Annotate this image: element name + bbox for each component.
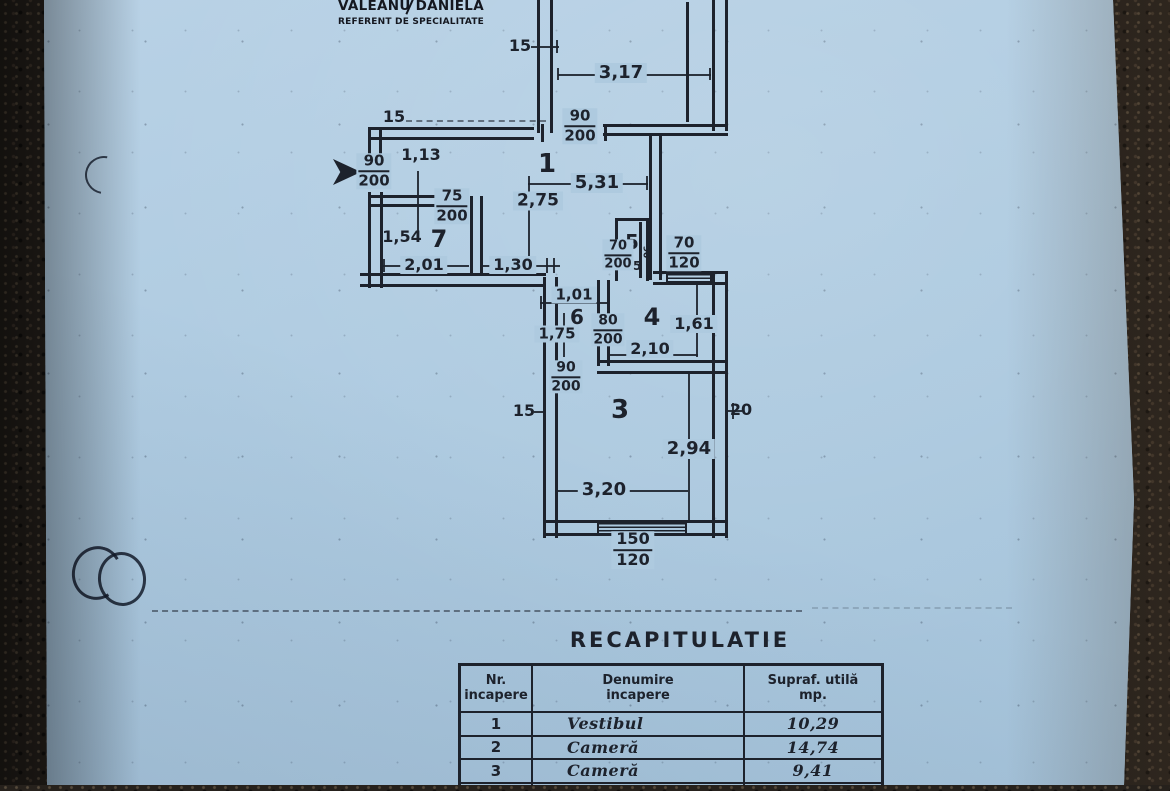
- dimension-label: 2,75: [513, 192, 563, 211]
- dim-tick: [709, 68, 711, 80]
- col-header-line: incapere: [464, 689, 528, 704]
- size-numerator: 75: [436, 188, 467, 207]
- dim-tick: [540, 296, 542, 309]
- size-denominator: 120: [668, 254, 699, 271]
- wall-segment: [537, 0, 553, 133]
- size-denominator: 200: [358, 172, 389, 189]
- table-row: 2Cameră14,74: [461, 735, 881, 759]
- door-jamb: [604, 124, 607, 141]
- col-header-line: incapere: [606, 689, 670, 704]
- wall-segment: [470, 196, 483, 274]
- row-name: Vestibul: [533, 713, 745, 735]
- fold-line: [812, 607, 1012, 609]
- dimension-label: 1,75: [534, 326, 579, 343]
- dimension-label: 5,31: [571, 173, 623, 193]
- size-denominator: 120: [613, 551, 652, 569]
- size-numerator: 70: [668, 235, 699, 254]
- size-numerator: 90: [358, 153, 389, 172]
- dimension-label: 3,17: [595, 63, 647, 83]
- room-number-3: 3: [611, 397, 629, 423]
- row-name: Cameră: [533, 760, 745, 782]
- wall-segment: [368, 127, 534, 140]
- door-75-200-room7: 75200: [434, 188, 469, 224]
- door-90-200-entrance: 90200: [356, 153, 391, 189]
- wall-partition: [686, 2, 689, 122]
- size-numerator: 90: [564, 108, 595, 127]
- size-denominator: 200: [604, 256, 631, 271]
- dim-tick: [553, 258, 555, 273]
- window-symbol: [666, 272, 712, 285]
- recap-rows: 1Vestibul10,292Cameră14,743Cameră9,41: [461, 711, 881, 782]
- recap-table: Nr. incapere Denumire incapere Supraf. u…: [458, 663, 884, 791]
- size-numerator: 90: [551, 360, 580, 378]
- dimension-label: 90: [641, 246, 650, 259]
- recap-title: RECAPITULATIE: [560, 628, 800, 652]
- col-header-line: mp.: [799, 689, 827, 704]
- dimension-label: 2,10: [626, 340, 673, 358]
- door-jamb: [541, 124, 544, 142]
- dimension-label: 1,61: [670, 315, 717, 333]
- wall-segment: [597, 360, 728, 374]
- wall-segment: [603, 124, 728, 136]
- room-number-7: 7: [431, 227, 448, 251]
- dimension-label: 3,20: [578, 480, 630, 500]
- dim-tick: [534, 411, 544, 413]
- dimension-label: 2,94: [663, 439, 715, 459]
- size-denominator: 200: [551, 378, 580, 394]
- dim-line: [417, 171, 419, 231]
- size-numerator: 150: [613, 531, 652, 551]
- row-nr: 3: [461, 760, 533, 782]
- row-area: 10,29: [745, 713, 881, 735]
- size-numerator: 80: [593, 313, 622, 331]
- dim-ext-line: [406, 120, 546, 122]
- wall-segment: [368, 195, 441, 207]
- fold-line: [152, 610, 802, 612]
- recap-table-header: Nr. incapere Denumire incapere Supraf. u…: [461, 666, 881, 711]
- col-header-nr: Nr. incapere: [461, 666, 533, 711]
- row-area: 14,74: [745, 737, 881, 759]
- wall-segment: [712, 0, 728, 131]
- col-header-line: Denumire: [602, 674, 673, 689]
- wall-segment: [543, 277, 558, 538]
- dimension-label: 1,54: [382, 229, 421, 245]
- col-header-suprafata: Supraf. utilă mp.: [745, 666, 881, 711]
- wall-segment: [360, 273, 546, 287]
- dim-tick: [546, 258, 548, 273]
- table-row: 3Cameră9,41: [461, 758, 881, 782]
- room-number-1: 1: [538, 151, 556, 177]
- row-area: 9,41: [745, 760, 881, 782]
- dimension-label: 20: [730, 402, 752, 418]
- dim-tick: [557, 68, 559, 80]
- wall-segment: [712, 271, 728, 538]
- col-header-line: Nr.: [486, 674, 506, 689]
- dimension-label: 1,13: [401, 147, 440, 163]
- dimension-label: 15: [509, 38, 531, 54]
- window-70-120: 70120: [666, 235, 701, 271]
- wall-segment: [597, 280, 610, 314]
- door-90-200-room2: 90200: [562, 108, 597, 144]
- dim-tick: [646, 176, 648, 190]
- door-70-200-room5: 70200: [602, 239, 633, 270]
- col-header-denumire: Denumire incapere: [533, 666, 745, 711]
- size-denominator: 200: [564, 127, 595, 144]
- size-denominator: 200: [436, 207, 467, 224]
- dimension-label: 2,01: [400, 256, 447, 274]
- table-row: 1Vestibul10,29: [461, 711, 881, 735]
- dim-tick: [531, 46, 559, 48]
- dimension-label: 15: [513, 403, 535, 419]
- dim-tick: [556, 40, 558, 53]
- dim-tick: [383, 259, 385, 272]
- size-numerator: 70: [604, 239, 631, 256]
- row-nr: 1: [461, 713, 533, 735]
- wall-segment: [649, 133, 662, 280]
- door-90-200-room3: 90200: [549, 360, 582, 393]
- size-denominator: 200: [593, 331, 622, 347]
- wall-segment: [368, 127, 382, 154]
- col-header-line: Supraf. utilă: [768, 674, 859, 689]
- room-number-4: 4: [644, 305, 661, 329]
- row-name: Cameră: [533, 737, 745, 759]
- door-80-200-room4: 80200: [591, 313, 624, 346]
- blueprint-paper: VALEANU DANIELA REFERENT DE SPECIALITATE: [0, 0, 1170, 785]
- photo-of-floor-plan-document: { "document": { "author": { "name": "VAL…: [0, 0, 1170, 785]
- dimension-label: 15: [383, 109, 405, 125]
- row-nr: 2: [461, 737, 533, 759]
- dimension-label: 1,01: [551, 287, 596, 304]
- dimension-label: 1,30: [489, 256, 536, 274]
- table-row-partial: [461, 782, 881, 791]
- window-150-120: 150120: [611, 531, 654, 569]
